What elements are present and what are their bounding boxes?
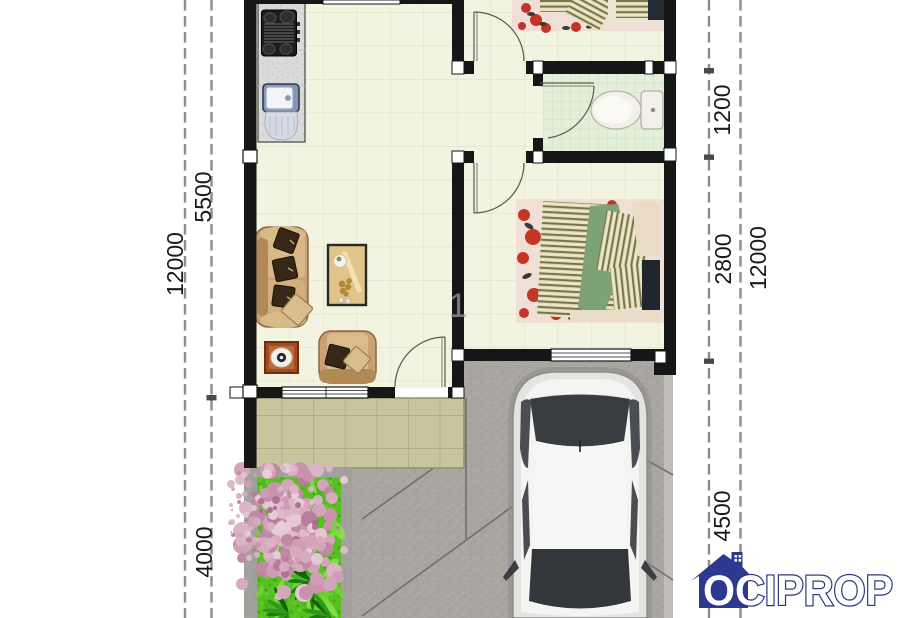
svg-text:1: 1: [449, 287, 468, 325]
svg-text:4000: 4000: [191, 526, 217, 577]
svg-text:12000: 12000: [162, 232, 188, 296]
svg-text:1200: 1200: [709, 84, 735, 135]
svg-text:2800: 2800: [710, 233, 736, 284]
svg-text:OCIPROP: OCIPROP: [703, 567, 893, 615]
svg-text:5500: 5500: [190, 171, 216, 222]
svg-text:4500: 4500: [709, 490, 735, 541]
svg-text:12000: 12000: [745, 226, 771, 290]
